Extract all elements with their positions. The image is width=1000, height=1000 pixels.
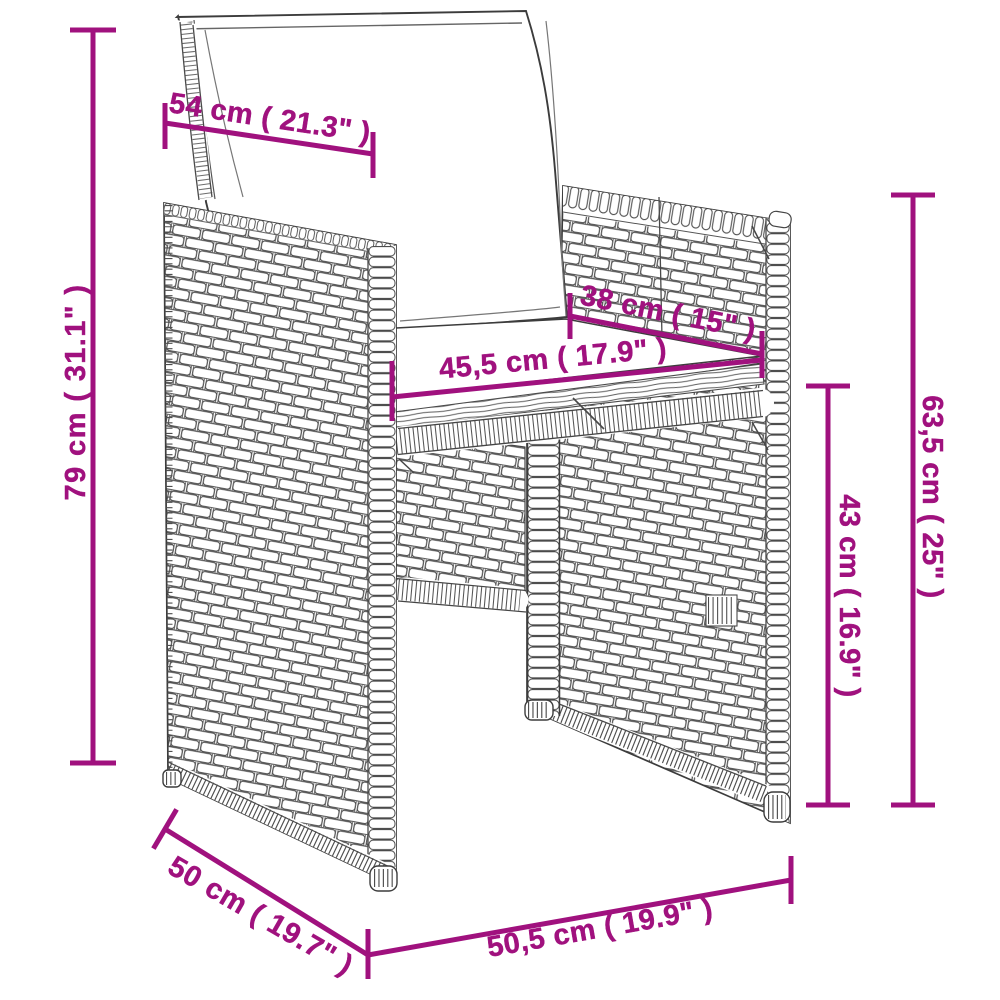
svg-text:79 cm ( 31.1" ): 79 cm ( 31.1" )	[60, 284, 92, 501]
svg-text:43 cm ( 16.9" ): 43 cm ( 16.9" )	[833, 494, 865, 697]
svg-text:63,5 cm ( 25" ): 63,5 cm ( 25" )	[916, 395, 948, 598]
